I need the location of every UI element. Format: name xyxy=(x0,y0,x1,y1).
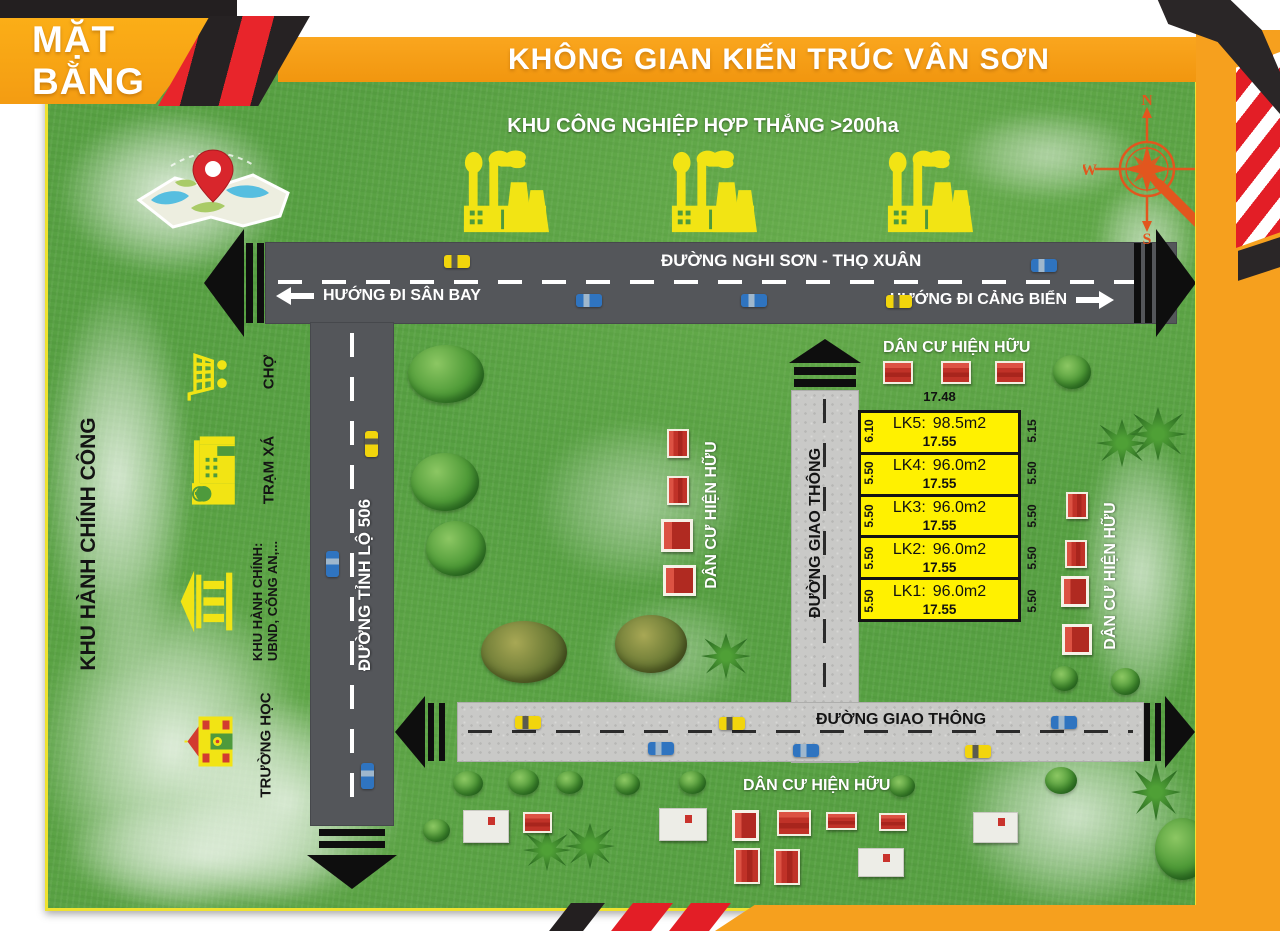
road-end-bar xyxy=(246,243,253,323)
plot-row-lk4: LK4:96.0m2 17.55 xyxy=(861,455,1018,497)
palm-tree-icon xyxy=(1096,419,1148,467)
residential-label-right: DÂN CƯ HIỆN HỮU xyxy=(1102,502,1120,649)
house-icon xyxy=(826,812,857,830)
car-icon xyxy=(515,716,541,729)
road-center-line xyxy=(350,333,354,815)
house-icon xyxy=(777,810,811,836)
car-icon xyxy=(886,295,912,308)
car-icon xyxy=(576,294,602,307)
car-icon xyxy=(1051,716,1077,729)
road-end-bar xyxy=(1145,243,1152,323)
admin-zone-title: KHU HÀNH CHÍNH CÔNG xyxy=(77,417,101,670)
tree-icon xyxy=(481,621,567,683)
car-icon xyxy=(365,431,378,457)
plot-area: 96.0m2 xyxy=(933,583,986,600)
plot-left-dim: 5.50 xyxy=(862,504,876,527)
house-icon xyxy=(1066,492,1088,519)
plot-area: 96.0m2 xyxy=(933,457,986,474)
airport-direction: HƯỚNG ĐI SÂN BAY xyxy=(282,287,481,305)
industrial-zone-label: KHU CÔNG NGHIỆP HỢP THẮNG >200ha xyxy=(453,115,953,138)
tree-icon xyxy=(615,615,687,673)
plot-right-dim: 5.50 xyxy=(1025,504,1039,527)
house-icon xyxy=(667,476,689,505)
plot-area: 98.5m2 xyxy=(933,415,986,432)
tree-icon xyxy=(556,771,583,794)
house-icon xyxy=(734,848,760,884)
provincial-road-506 xyxy=(311,323,393,825)
clinic-label: TRẠM XÁ xyxy=(261,436,278,504)
tree-icon xyxy=(423,819,450,842)
main-road-name: ĐƯỜNG NGHI SƠN - THỌ XUÂN xyxy=(661,251,921,271)
car-icon xyxy=(444,255,470,268)
main-road: ĐƯỜNG NGHI SƠN - THỌ XUÂN HƯỚNG ĐI SÂN B… xyxy=(266,243,1176,323)
house-icon xyxy=(774,849,800,885)
house-icon xyxy=(1065,540,1087,568)
plot-table: LK5:98.5m2 17.55 LK4:96.0m2 17.55 LK3:96… xyxy=(858,410,1021,622)
plot-width: 17.55 xyxy=(923,518,957,533)
plot-row-lk1: LK1:96.0m2 17.55 xyxy=(861,580,1018,619)
road-end-arrow-down xyxy=(307,855,397,889)
plot-right-dim: 5.50 xyxy=(1025,461,1039,484)
car-icon xyxy=(741,294,767,307)
palm-tree-icon xyxy=(701,633,751,679)
plot-name: LK4: xyxy=(893,457,926,474)
house-icon xyxy=(883,361,913,384)
road-end-bar xyxy=(257,243,264,323)
compass-south: S xyxy=(1143,231,1152,245)
plot-width: 17.55 xyxy=(923,434,957,449)
school-icon xyxy=(185,713,242,771)
road-end-bar xyxy=(1144,703,1150,761)
provincial-road-name: ĐƯỜNG TỈNH LỘ 506 xyxy=(355,499,375,671)
clinic-icon xyxy=(183,435,242,507)
palm-tree-icon xyxy=(1129,407,1187,461)
plot-row-lk3: LK3:96.0m2 17.55 xyxy=(861,497,1018,539)
compass-west: W xyxy=(1083,162,1097,179)
tree-icon xyxy=(615,773,640,795)
palm-tree-icon xyxy=(523,829,571,871)
plot-right-dim: 5.50 xyxy=(1025,589,1039,612)
road-center-line xyxy=(468,730,1133,733)
tree-icon xyxy=(508,769,539,795)
road-end-bar xyxy=(319,841,385,848)
house-icon xyxy=(661,519,693,552)
tree-icon xyxy=(453,771,483,796)
plot-width: 17.55 xyxy=(923,476,957,491)
compass-rose-icon: N E S W xyxy=(1083,95,1198,245)
tree-icon xyxy=(1045,767,1077,794)
house-icon xyxy=(659,808,707,841)
plot-left-dim: 6.10 xyxy=(862,419,876,442)
residential-label-bottom: DÂN CƯ HIỆN HỮU xyxy=(743,777,890,795)
government-label-line1: KHU HÀNH CHÍNH: xyxy=(250,541,265,661)
cloud-decoration xyxy=(58,798,348,911)
plot-right-dim: 5.15 xyxy=(1025,419,1039,442)
house-icon xyxy=(879,813,907,831)
residential-label-middle: DÂN CƯ HIỆN HỮU xyxy=(703,441,721,588)
factory-icon xyxy=(879,149,979,237)
factory-icon xyxy=(455,149,555,237)
tree-icon xyxy=(889,775,915,797)
car-icon xyxy=(1031,259,1057,272)
title-banner: KHÔNG GIAN KIẾN TRÚC VÂN SƠN xyxy=(278,37,1196,82)
road-end-bar xyxy=(428,703,434,761)
plot-name: LK2: xyxy=(893,541,926,558)
map-area: KHU CÔNG NGHIỆP HỢP THẮNG >200ha xyxy=(45,60,1198,911)
road-end-bar xyxy=(794,379,856,387)
car-icon xyxy=(719,717,745,730)
right-arrow-icon xyxy=(1076,297,1108,303)
market-label: CHỢ xyxy=(261,355,278,389)
government-building-icon xyxy=(179,569,240,635)
house-icon xyxy=(858,848,904,877)
tree-icon xyxy=(411,453,479,511)
site-plan-poster: KHÔNG GIAN KIẾN TRÚC VÂN SƠN MẶT BẰNG KH… xyxy=(0,0,1280,931)
tree-icon xyxy=(1155,818,1198,880)
house-icon xyxy=(1062,624,1092,655)
road-end-arrow-up xyxy=(789,339,861,363)
plot-name: LK1: xyxy=(893,583,926,600)
house-icon xyxy=(973,812,1018,843)
market-cart-icon xyxy=(183,350,238,404)
plot-name: LK5: xyxy=(893,415,926,432)
house-icon xyxy=(995,361,1025,384)
palm-tree-icon xyxy=(565,823,615,869)
page-title: KHÔNG GIAN KIẾN TRÚC VÂN SƠN xyxy=(508,43,1050,77)
house-icon xyxy=(1061,576,1089,607)
bottom-orange-strip xyxy=(715,905,1280,931)
left-arrow-icon xyxy=(282,293,314,299)
road-end-arrow-right xyxy=(1165,696,1195,768)
plot-name: LK3: xyxy=(893,499,926,516)
car-icon xyxy=(793,744,819,757)
road-end-bar xyxy=(1134,243,1141,323)
house-icon xyxy=(941,361,971,384)
plot-area: 96.0m2 xyxy=(933,499,986,516)
plot-right-dim: 5.50 xyxy=(1025,546,1039,569)
house-icon xyxy=(663,565,696,596)
plot-row-lk2: LK2:96.0m2 17.55 xyxy=(861,538,1018,580)
road-center-line xyxy=(278,280,1164,284)
government-label-line2: UBND, CÔNG AN,... xyxy=(265,541,280,661)
tree-icon xyxy=(1053,355,1091,389)
seaport-direction: HƯỚNG ĐI CẢNG BIỂN xyxy=(890,291,1108,309)
road-end-bar xyxy=(1155,703,1161,761)
tree-icon xyxy=(1051,666,1078,691)
factory-icon xyxy=(663,149,763,237)
vertical-service-road-name: ĐƯỜNG GIAO THÔNG xyxy=(807,448,825,618)
car-icon xyxy=(965,745,991,758)
plot-width: 17.55 xyxy=(923,602,957,617)
house-icon xyxy=(463,810,509,843)
plot-top-width: 17.48 xyxy=(858,389,1021,404)
house-icon xyxy=(667,429,689,458)
bottom-service-road-name: ĐƯỜNG GIAO THÔNG xyxy=(816,711,986,729)
car-icon xyxy=(361,763,374,789)
plot-left-dim: 5.50 xyxy=(862,461,876,484)
road-end-bar xyxy=(794,367,856,375)
plot-row-lk5: LK5:98.5m2 17.55 xyxy=(861,413,1018,455)
road-end-arrow-left xyxy=(204,229,244,337)
road-end-bar xyxy=(319,829,385,836)
government-label: KHU HÀNH CHÍNH: UBND, CÔNG AN,... xyxy=(250,541,280,661)
tree-icon xyxy=(426,521,486,576)
plot-left-dim: 5.50 xyxy=(862,589,876,612)
tree-icon xyxy=(679,771,706,794)
road-end-arrow-left xyxy=(395,696,425,768)
road-end-arrow-right xyxy=(1156,229,1196,337)
house-icon xyxy=(732,810,759,841)
plot-area: 96.0m2 xyxy=(933,541,986,558)
map-pin-icon xyxy=(131,138,296,233)
plot-width: 17.55 xyxy=(923,560,957,575)
road-end-bar xyxy=(439,703,445,761)
plot-left-dim: 5.50 xyxy=(862,546,876,569)
cloud-decoration xyxy=(45,283,193,673)
school-label: TRƯỜNG HỌC xyxy=(258,692,275,797)
car-icon xyxy=(326,551,339,577)
residential-label-top: DÂN CƯ HIỆN HỮU xyxy=(883,339,1030,357)
car-icon xyxy=(648,742,674,755)
compass-north: N xyxy=(1141,95,1153,109)
palm-tree-icon xyxy=(1131,763,1181,821)
tree-icon xyxy=(1111,668,1140,695)
house-icon xyxy=(523,812,552,833)
tree-icon xyxy=(408,345,484,403)
